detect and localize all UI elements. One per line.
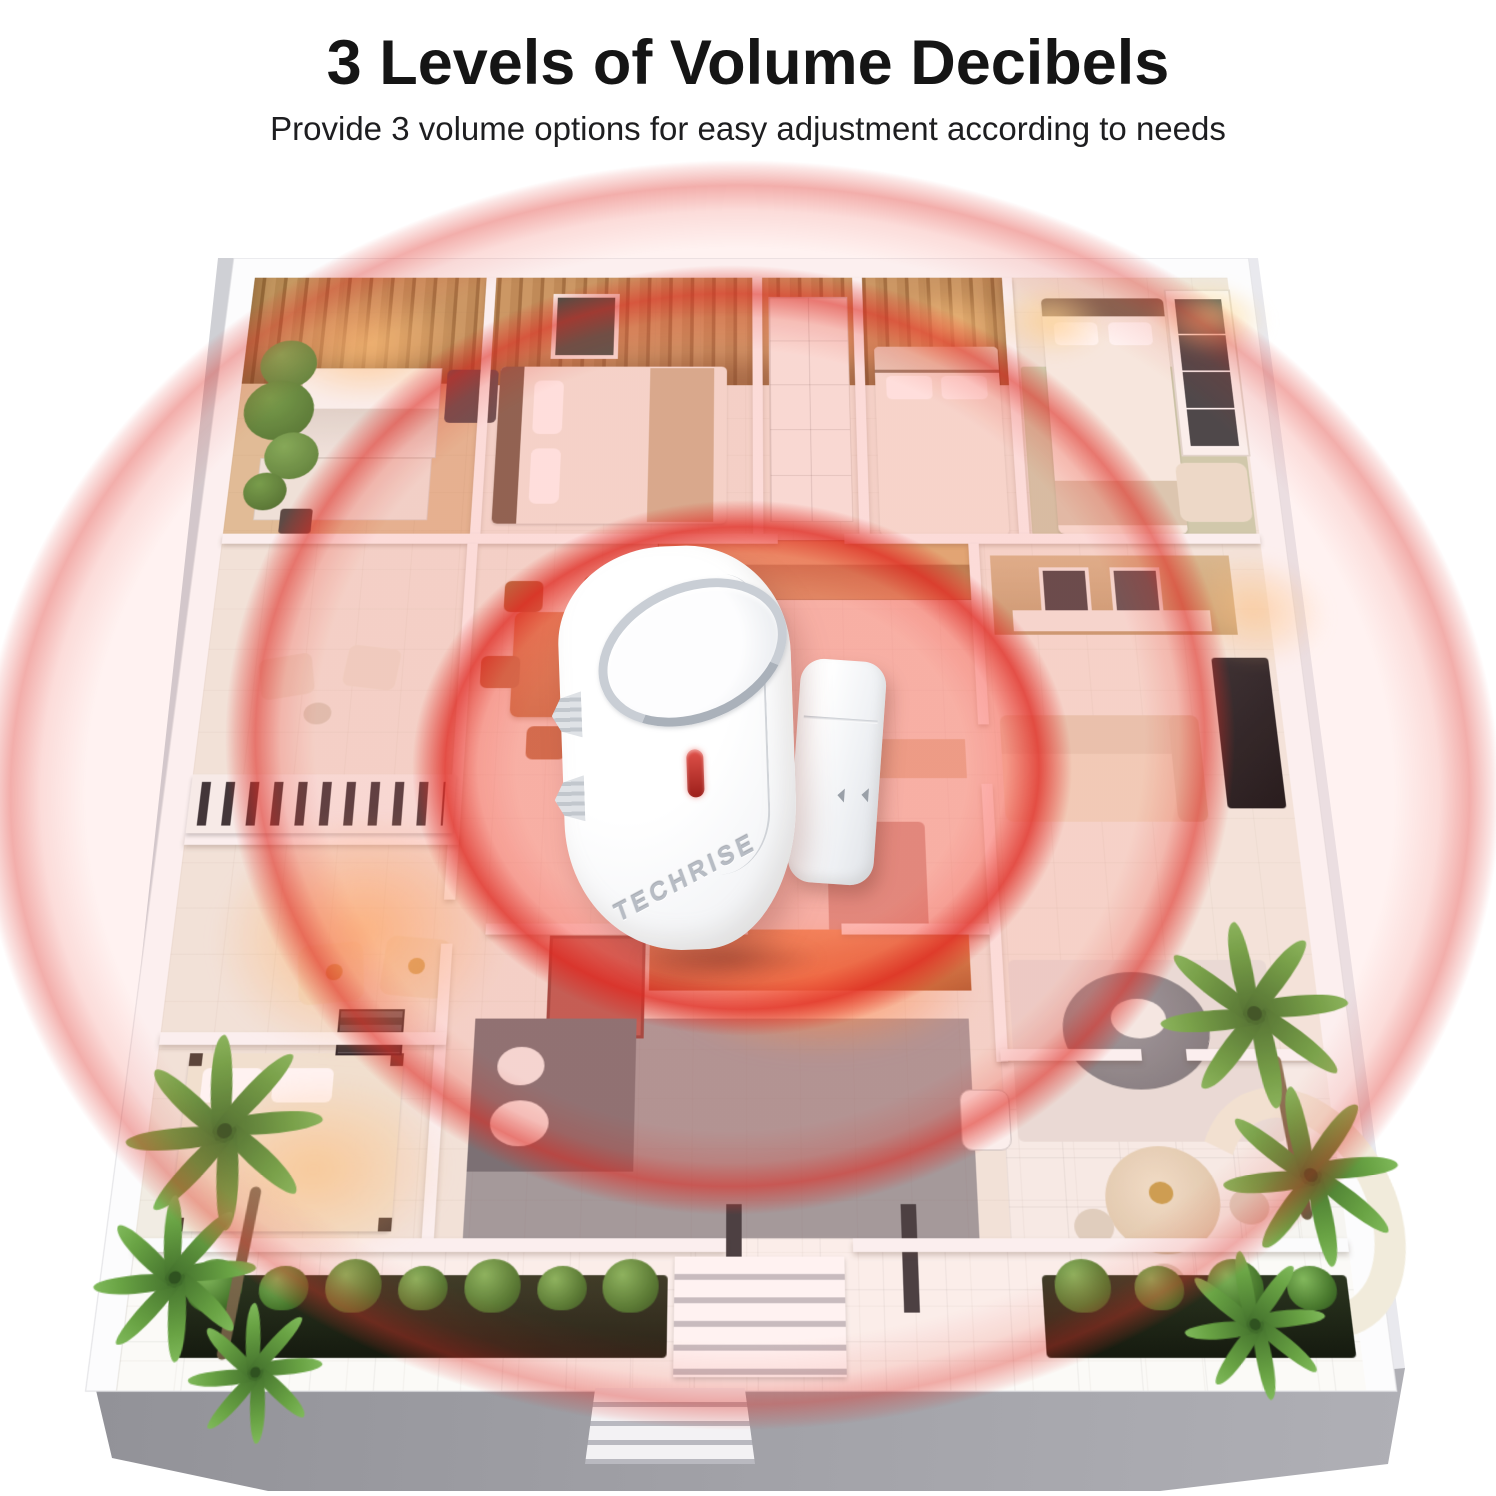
- alignment-arrow-icon: [854, 787, 869, 802]
- speaker-grille-icon: [576, 551, 810, 755]
- side-switch: [551, 691, 583, 738]
- page-subtitle: Provide 3 volume options for easy adjust…: [0, 110, 1496, 148]
- door-alarm-device: TECHRISE: [556, 540, 900, 980]
- header: 3 Levels of Volume Decibels Provide 3 vo…: [0, 0, 1496, 148]
- alarm-main-unit: TECHRISE: [555, 542, 801, 954]
- product-infographic: 3 Levels of Volume Decibels Provide 3 vo…: [0, 0, 1496, 1496]
- led-indicator: [686, 749, 705, 798]
- page-title: 3 Levels of Volume Decibels: [0, 30, 1496, 96]
- side-switch: [554, 775, 586, 822]
- alignment-arrow-icon: [830, 788, 845, 803]
- magnet-sensor-unit: [786, 657, 887, 886]
- brand-label: TECHRISE: [588, 815, 783, 941]
